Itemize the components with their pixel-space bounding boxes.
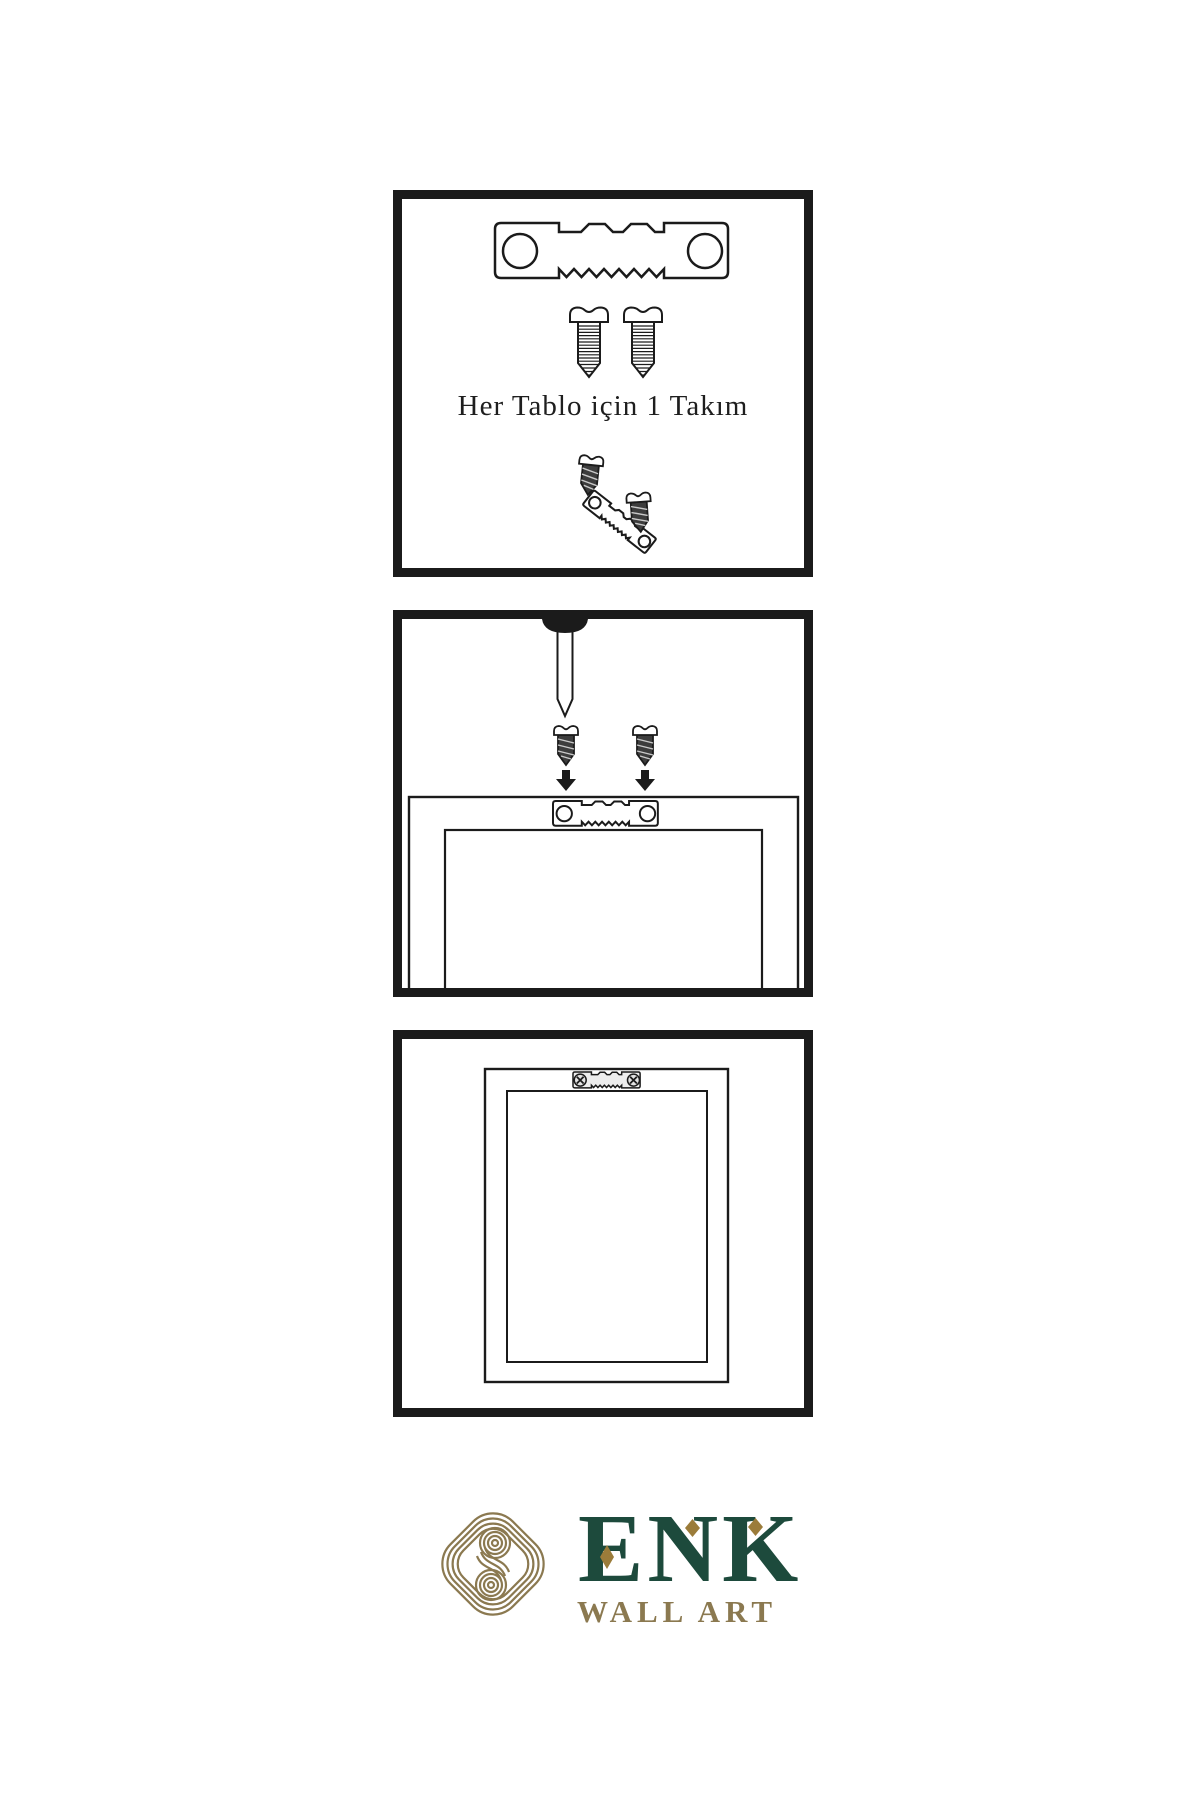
phillips-screw-head-icon [628, 1074, 640, 1086]
enk-knot-icon [436, 1500, 550, 1628]
attach-hanger-illustration [402, 619, 804, 988]
small-screw-icon [576, 455, 604, 496]
panel-attach-hanger [393, 610, 813, 997]
screw-icon [624, 308, 662, 378]
phillips-screw-head-icon [574, 1074, 586, 1086]
sawtooth-hanger-icon [553, 801, 658, 826]
frame-back-icon [485, 1069, 728, 1382]
arrow-down-icon [556, 770, 576, 791]
logo-subtitle: WALL ART [577, 1594, 777, 1630]
panel-mounted-frame [393, 1030, 813, 1417]
mounted-frame-illustration [402, 1039, 804, 1408]
screw-icon [570, 308, 608, 378]
kit-caption: Her Tablo için 1 Takım [402, 390, 804, 423]
arrow-down-icon [635, 770, 655, 791]
panel-hardware-kit: Her Tablo için 1 Takım [393, 190, 813, 577]
screw-icon [633, 726, 657, 765]
logo-title: ENK [578, 1496, 802, 1604]
frame-back-icon [409, 797, 798, 988]
sawtooth-hanger-icon [495, 223, 728, 278]
wall-nail-icon [542, 619, 588, 716]
screw-icon [554, 726, 578, 765]
hardware-kit-illustration [402, 199, 804, 568]
